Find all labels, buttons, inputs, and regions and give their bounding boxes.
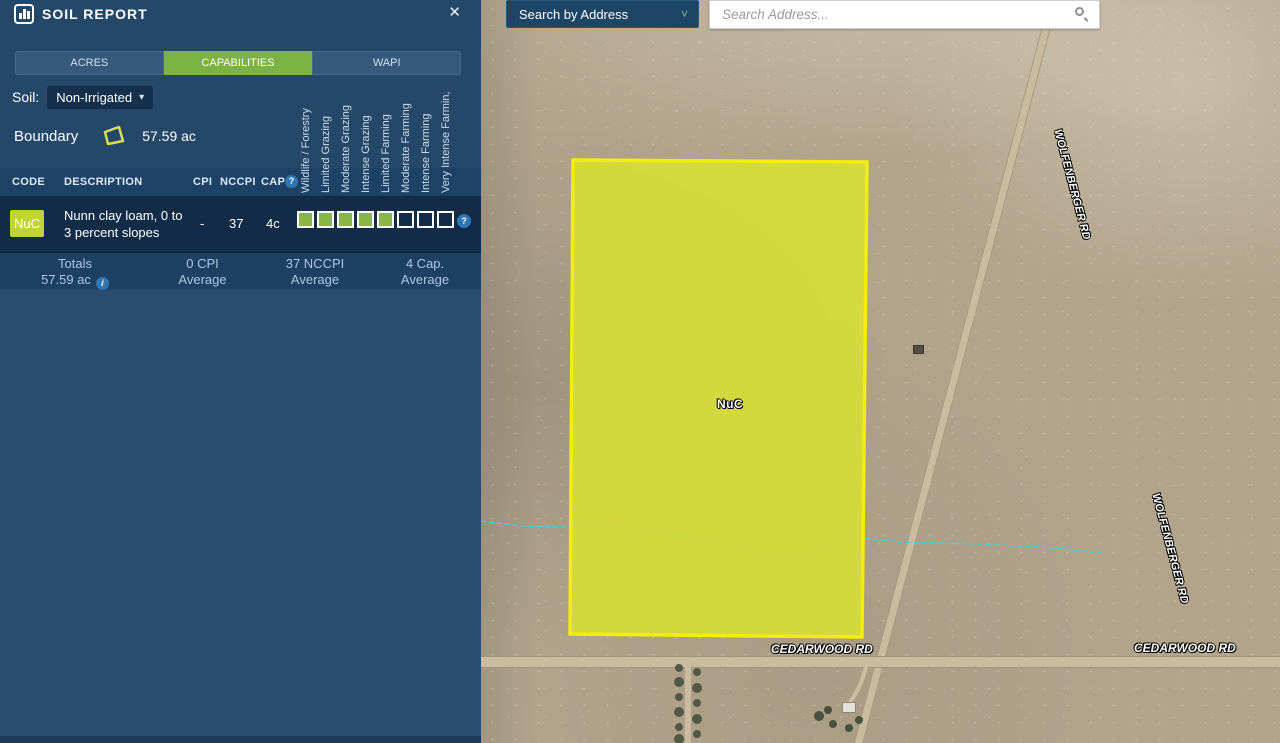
col-description: DESCRIPTION <box>64 176 142 188</box>
capability-square <box>437 211 454 228</box>
panel-bottom-strip <box>0 736 481 743</box>
capability-square <box>377 211 394 228</box>
tab-acres[interactable]: ACRES <box>15 51 164 75</box>
totals-cpi: 0 CPI Average <box>150 256 255 288</box>
search-type-value: Search by Address <box>519 7 628 22</box>
info-icon[interactable]: i <box>96 277 109 290</box>
col-cap: CAP <box>261 176 285 188</box>
cpi-value: - <box>200 216 204 231</box>
col-nccpi: NCCPI <box>220 176 256 188</box>
totals-cap: 4 Cap. Average <box>375 256 475 288</box>
soil-selector-row: Soil: Non-Irrigated ▾ <box>12 85 153 109</box>
chevron-down-icon: ˅ <box>681 7 688 21</box>
close-icon[interactable]: ✕ <box>448 4 461 22</box>
help-icon[interactable]: ? <box>457 214 471 228</box>
table-header: CODE DESCRIPTION CPI NCCPI CAP ? <box>0 168 481 196</box>
capability-square <box>297 211 314 228</box>
table-row[interactable]: NuC Nunn clay loam, 0 to 3 percent slope… <box>0 196 481 252</box>
totals-row: Totals 57.59 aci 0 CPI Average 37 NCCPI … <box>0 252 481 289</box>
road-label-cedarwood-2: CEDARWOOD RD <box>1134 641 1236 655</box>
chevron-down-icon: ▾ <box>139 92 144 103</box>
parcel-code-label: NuC <box>717 397 743 411</box>
soil-report-panel: SOIL REPORT ✕ ACRES CAPABILITIES WAPI So… <box>0 0 481 743</box>
capability-square <box>397 211 414 228</box>
capability-square <box>317 211 334 228</box>
soil-label: Soil: <box>12 89 39 105</box>
capability-squares <box>297 211 457 228</box>
small-building <box>913 345 924 354</box>
soil-code-badge: NuC <box>10 210 44 237</box>
soil-select[interactable]: Non-Irrigated ▾ <box>47 86 153 109</box>
panel-title: SOIL REPORT <box>42 6 148 22</box>
search-type-dropdown[interactable]: Search by Address ˅ <box>506 0 699 28</box>
report-tabs: ACRES CAPABILITIES WAPI <box>15 51 461 75</box>
polygon-icon <box>102 125 126 147</box>
col-code: CODE <box>12 176 45 188</box>
col-cpi: CPI <box>193 176 212 188</box>
nccpi-value: 37 <box>229 216 243 231</box>
panel-body-fill <box>0 290 481 743</box>
map-overlay-svg <box>481 0 1280 743</box>
boundary-label: Boundary <box>14 128 78 145</box>
help-icon[interactable]: ? <box>285 175 298 188</box>
cap-value: 4c <box>266 216 280 231</box>
soil-description: Nunn clay loam, 0 to 3 percent slopes <box>64 207 183 241</box>
address-search <box>709 0 1100 29</box>
capability-square <box>337 211 354 228</box>
totals-nccpi: 37 NCCPI Average <box>260 256 370 288</box>
boundary-row: Boundary 57.59 ac <box>14 124 196 148</box>
tab-wapi[interactable]: WAPI <box>312 51 461 75</box>
capability-square <box>417 211 434 228</box>
search-icon[interactable] <box>1074 6 1090 22</box>
totals-acres: Totals 57.59 aci <box>10 256 140 290</box>
farm-driveway <box>847 658 868 706</box>
address-search-input[interactable] <box>709 0 1100 29</box>
soil-select-value: Non-Irrigated <box>56 90 132 105</box>
capability-square <box>357 211 374 228</box>
tab-capabilities[interactable]: CAPABILITIES <box>164 51 313 75</box>
road-label-cedarwood-1: CEDARWOOD RD <box>771 642 873 656</box>
boundary-area: 57.59 ac <box>142 128 196 144</box>
bar-chart-icon <box>14 4 34 24</box>
farm-building <box>842 702 856 713</box>
soil-report-app: NuC WOLFENBERGER RD WOLFENBERGER RD CEDA… <box>0 0 1280 743</box>
panel-header: SOIL REPORT ✕ <box>0 0 481 28</box>
satellite-map[interactable]: NuC WOLFENBERGER RD WOLFENBERGER RD CEDA… <box>481 0 1280 743</box>
